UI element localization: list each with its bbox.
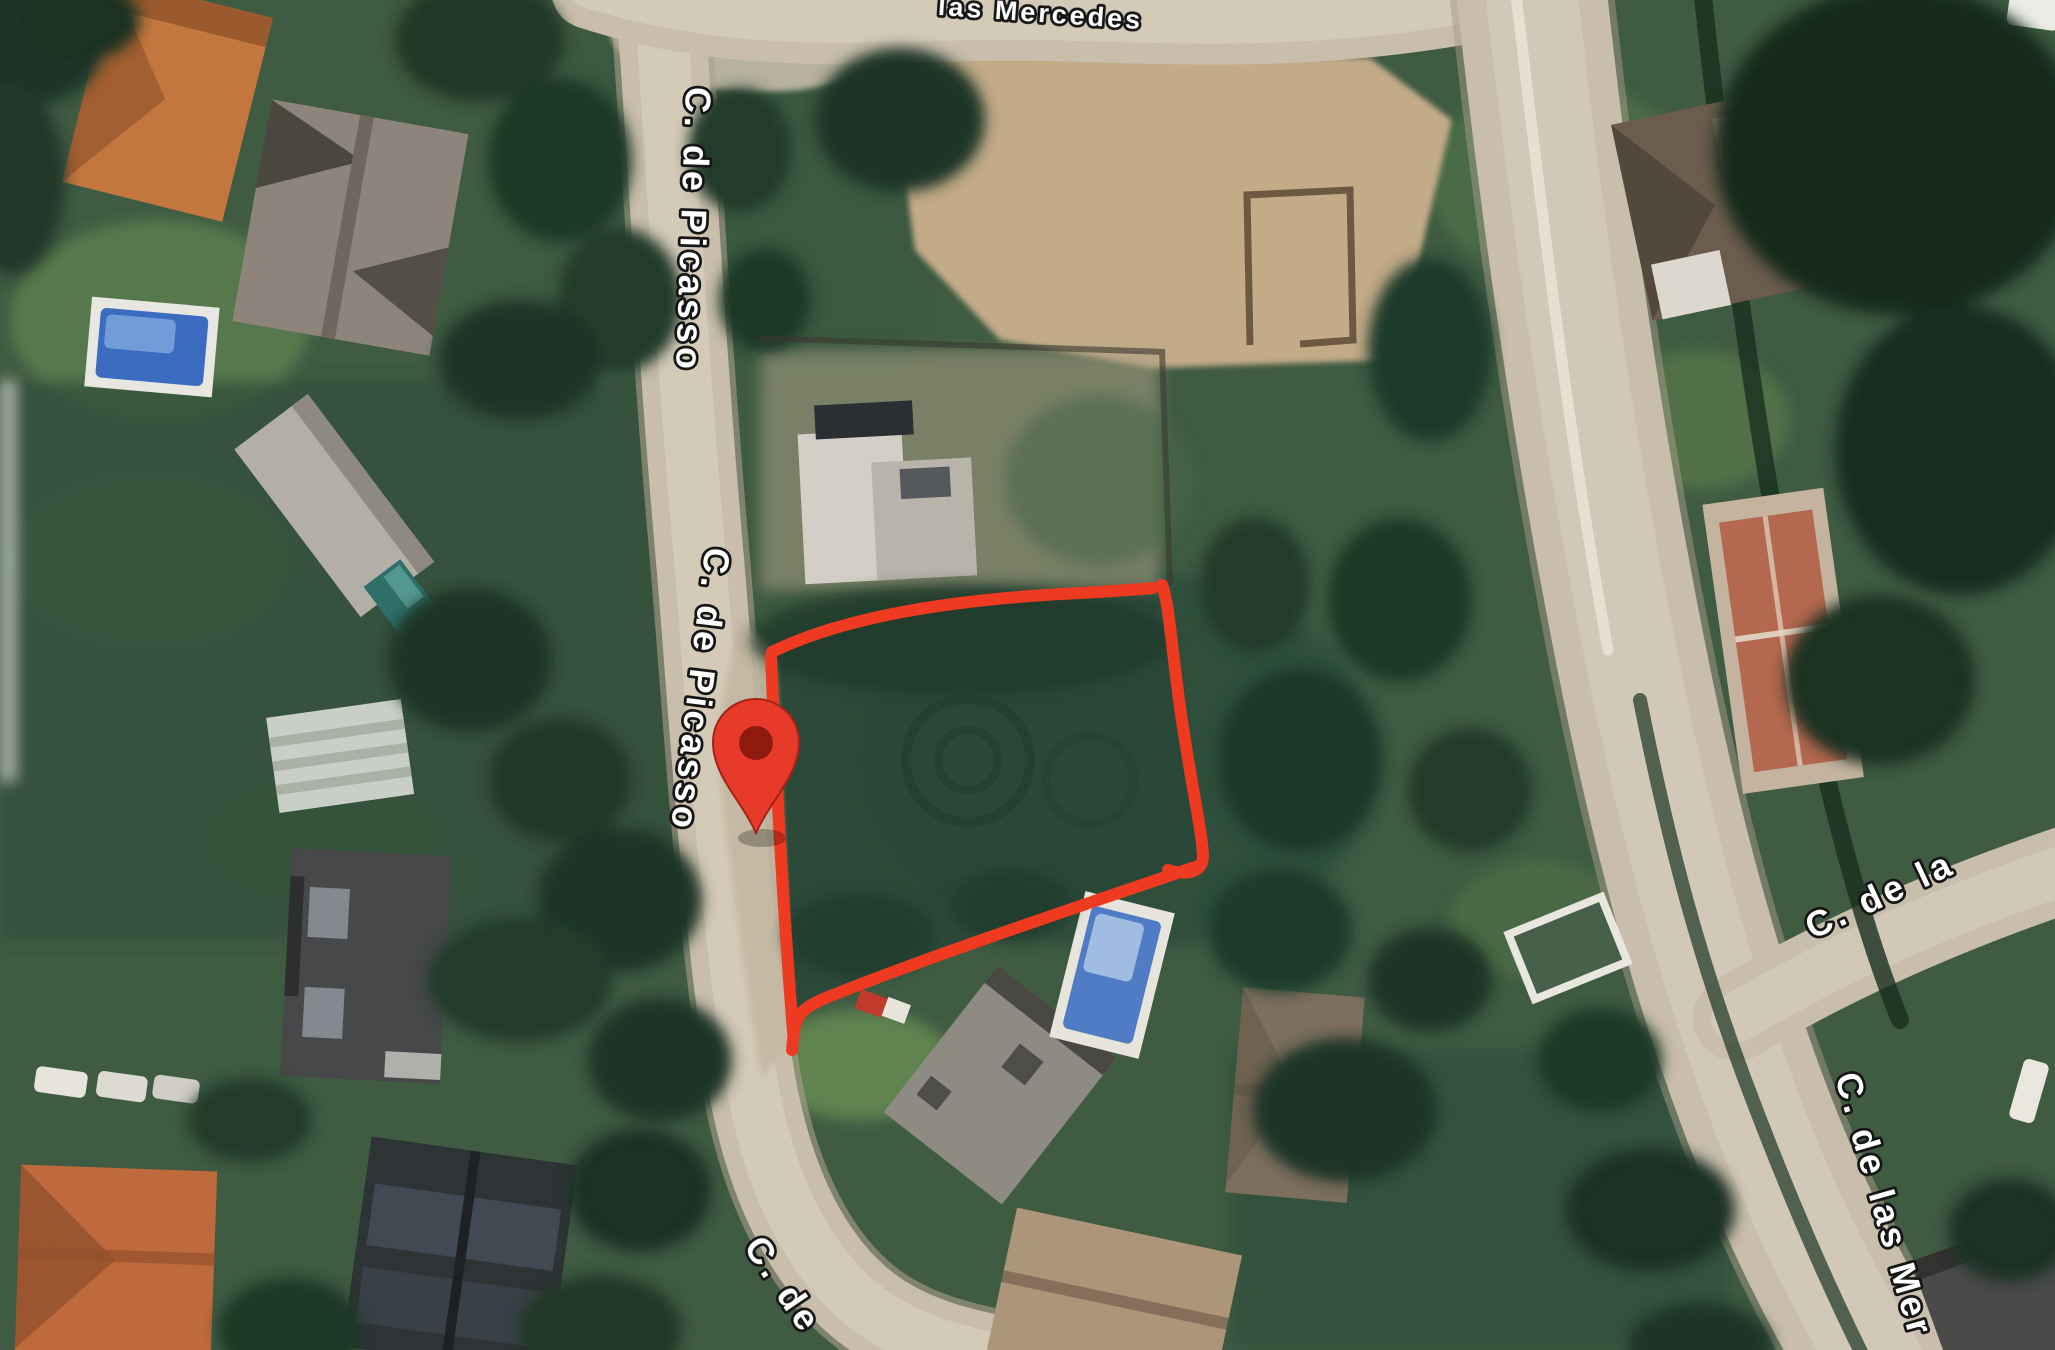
- pin-inner-dot: [739, 726, 773, 760]
- house-orange-bottom-left: [15, 1165, 218, 1350]
- pool-top-left: [84, 297, 219, 398]
- house-dark-bottom-left: [280, 848, 452, 1084]
- satellite-map[interactable]: las Mercedes C. de Picasso C. de Picasso…: [0, 0, 2055, 1350]
- house-gray-top-left: [232, 99, 468, 355]
- greenhouse-left: [266, 699, 414, 813]
